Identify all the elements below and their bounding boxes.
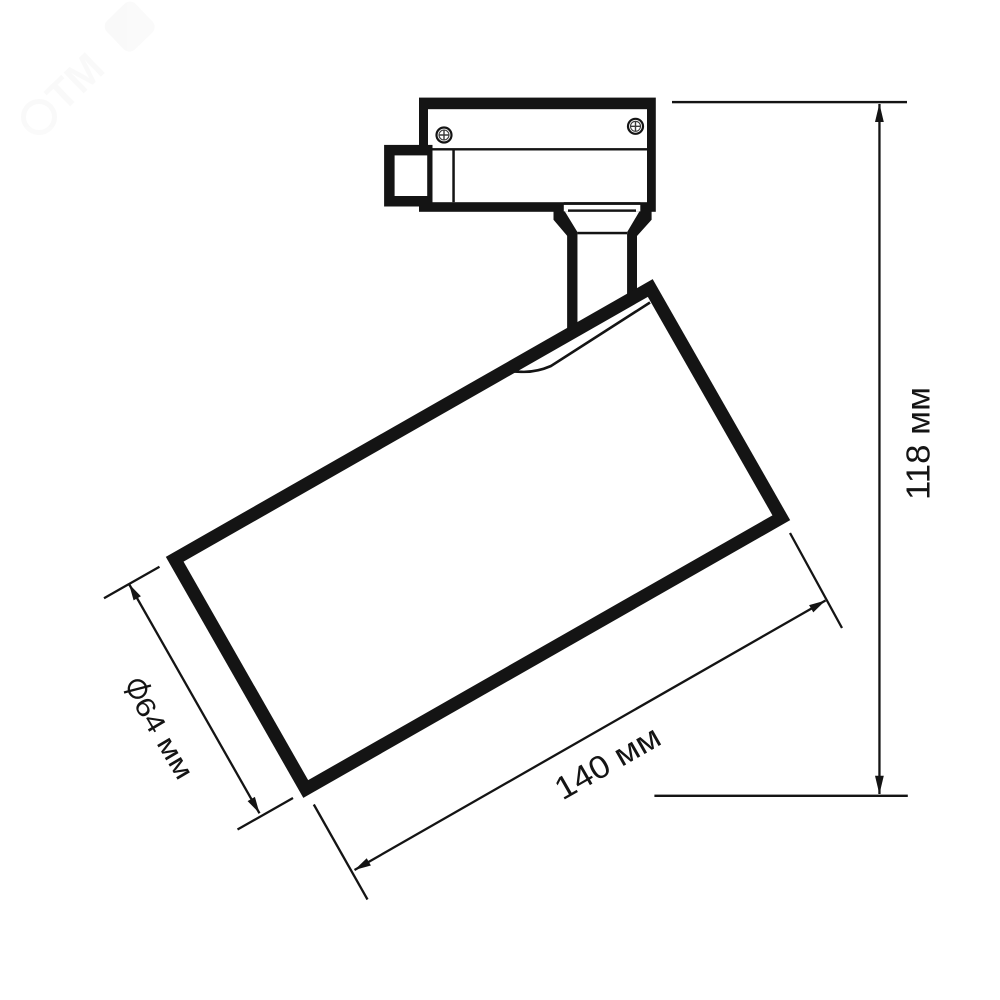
svg-text:118 мм: 118 мм [900,387,937,500]
